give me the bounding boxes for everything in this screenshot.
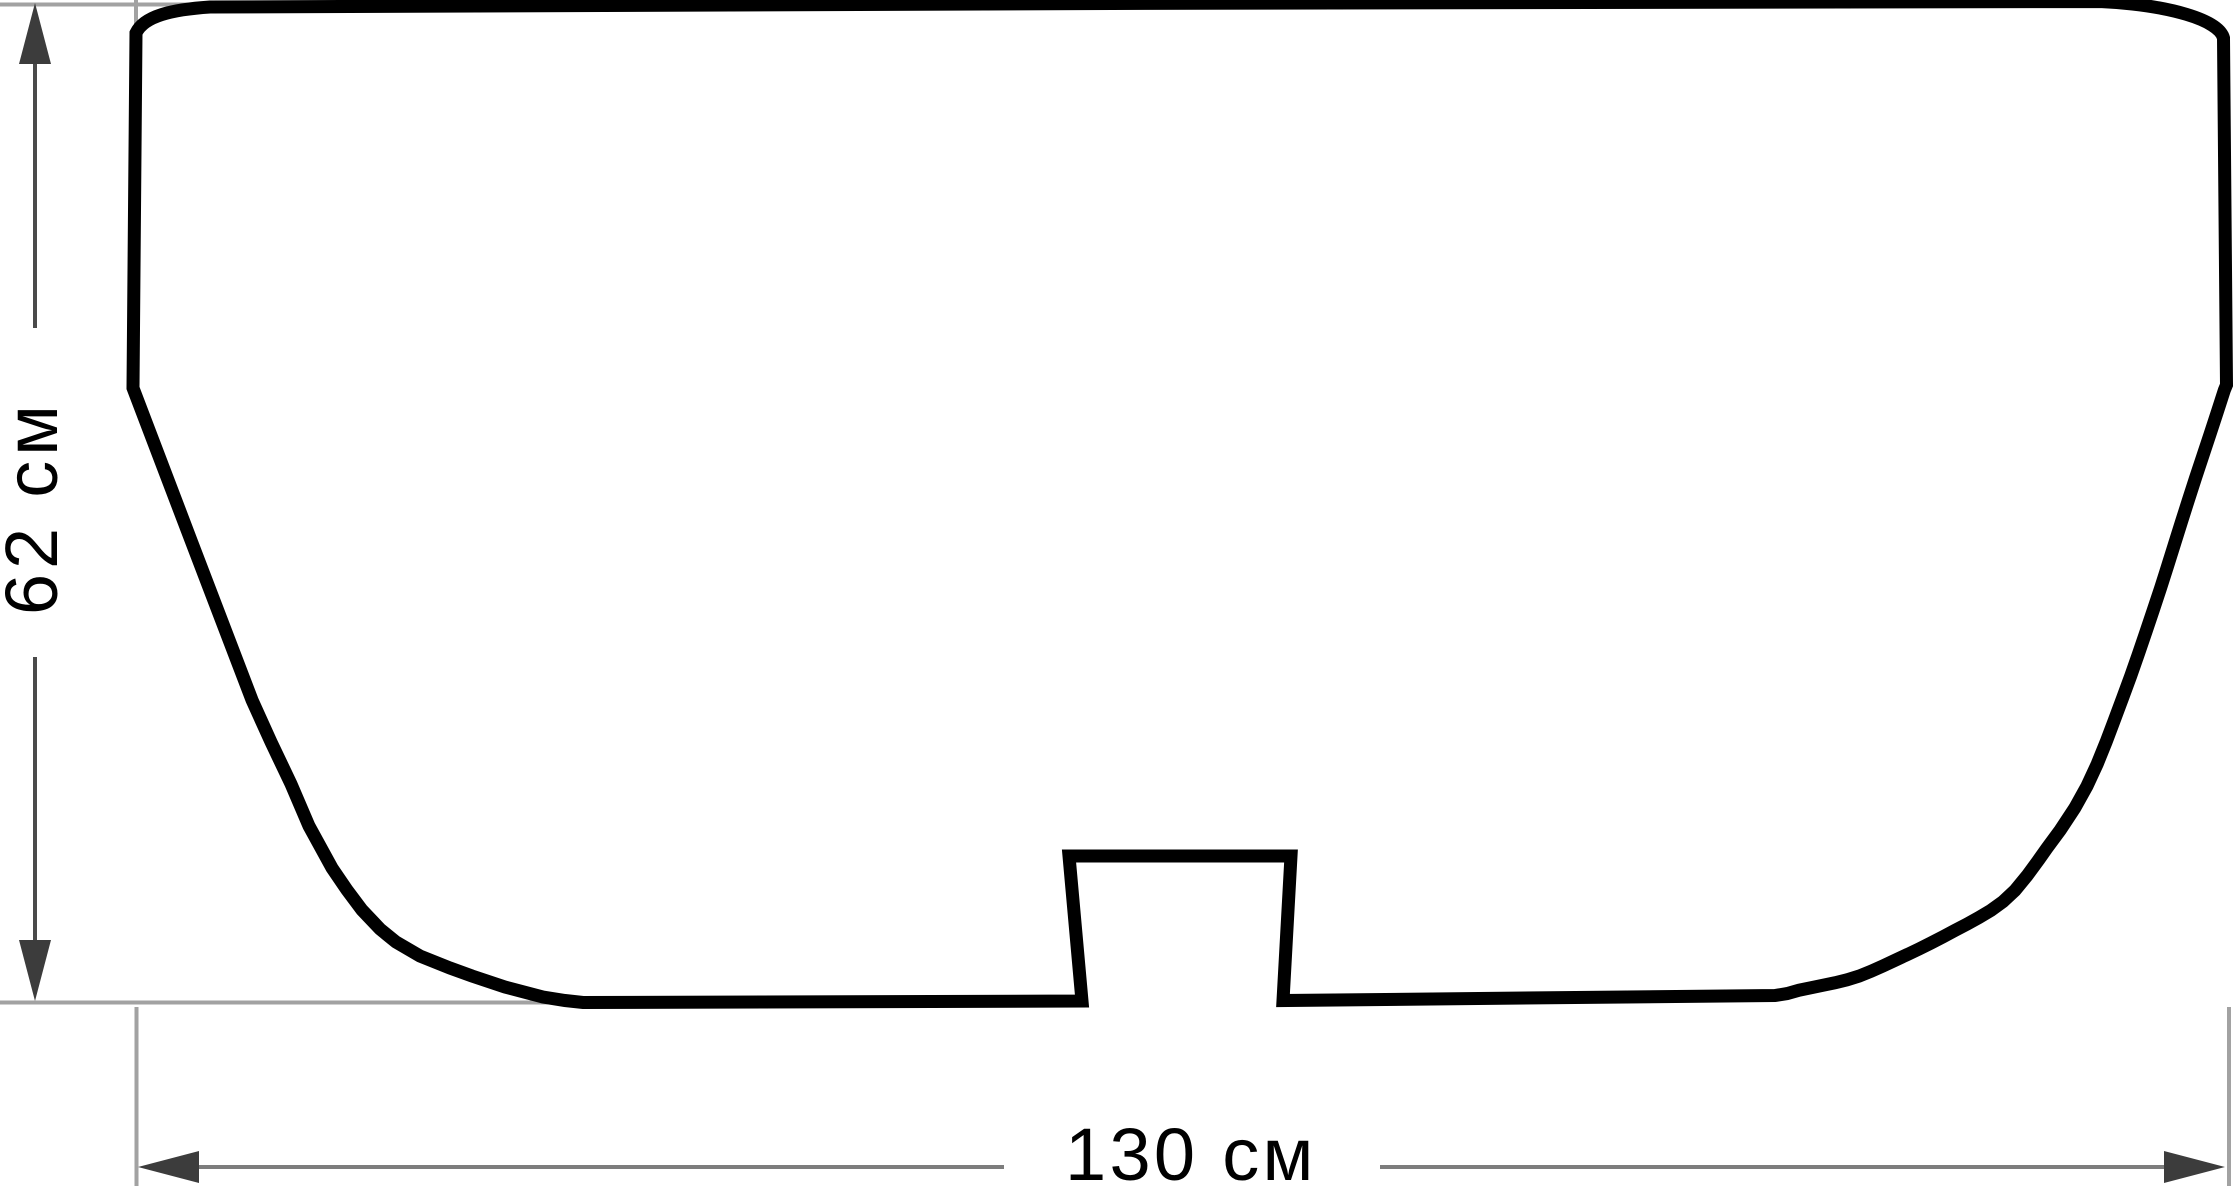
- svg-text:130 см: 130 см: [1065, 1113, 1317, 1188]
- svg-text:62 см: 62 см: [0, 400, 73, 615]
